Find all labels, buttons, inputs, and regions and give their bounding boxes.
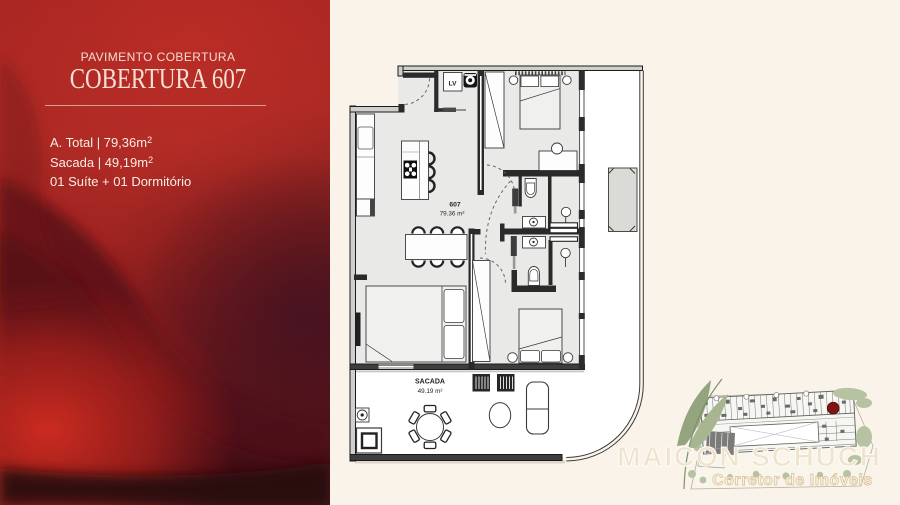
svg-text:MAICON SCHUCH: MAICON SCHUCH bbox=[617, 441, 882, 472]
svg-text:Corretor de Imóveis: Corretor de Imóveis bbox=[712, 472, 873, 489]
